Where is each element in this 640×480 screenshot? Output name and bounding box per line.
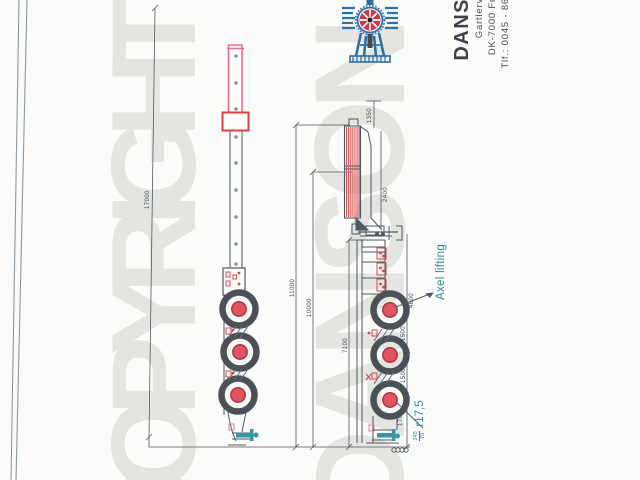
dim-label-deck: 7100 — [343, 338, 349, 353]
coupling-assembly — [352, 224, 402, 240]
beam-lock-box — [223, 113, 249, 131]
kingpin-teal-parts — [377, 429, 400, 441]
dim-label-front: 1350 — [367, 108, 373, 123]
logo-base-hatch — [353, 56, 385, 62]
scanned-drawing-page: COPYRIGHT DANSON — [0, 0, 640, 480]
letterhead: DANS Gartlerv DK-7000 Fr Tlf.: 0045 - 86 — [452, 0, 512, 138]
logo-base — [350, 56, 390, 62]
logo-hub — [368, 18, 373, 23]
dim-label-rear: 1700 — [398, 411, 404, 426]
left-rear-taper — [228, 412, 252, 445]
tire-width: 245 — [413, 431, 420, 441]
left-trailer-wheels — [222, 293, 257, 412]
dim-label-neck: 2400 — [383, 187, 389, 202]
tire-fraction: 24570 — [413, 431, 426, 441]
right-trailer-wheels — [374, 294, 407, 417]
beam-main-section — [230, 131, 242, 269]
tire-size-note: 24570 r17,5 — [413, 400, 427, 441]
gooseneck-tab — [349, 119, 358, 126]
logo-center-post — [368, 34, 373, 48]
trailer-drawing-canvas — [0, 0, 640, 480]
dim-label-axle-top: 4600 — [409, 293, 415, 308]
neck-outline — [356, 126, 382, 230]
scan-edge-lines — [11, 0, 27, 480]
company-name: DANS — [452, 0, 473, 138]
company-phone: Tlf.: 0045 - 86 — [499, 0, 512, 138]
company-city: DK-7000 Fr — [486, 0, 499, 138]
tire-radius: r17,5 — [414, 400, 426, 426]
axle-lifting-note: Axel lifting — [436, 244, 448, 300]
beam-pocket-dots — [234, 54, 238, 266]
air-valves — [226, 272, 240, 286]
dim-label-overall: 11000 — [290, 279, 296, 297]
dim-label-axle-spacing-1: 1500 — [401, 326, 407, 341]
company-street: Gartlerv — [473, 0, 486, 138]
dim-label-axle-spacing-2: 1500 — [401, 368, 407, 383]
machine-wheel-emblem-logo — [341, 0, 399, 64]
dim-label-inner: 10000 — [307, 298, 313, 317]
gooseneck-hatching — [347, 127, 360, 217]
dim-label-total-length: 17000 — [145, 190, 151, 209]
logo-mast — [367, 0, 374, 5]
tire-aspect: 70 — [420, 431, 426, 441]
